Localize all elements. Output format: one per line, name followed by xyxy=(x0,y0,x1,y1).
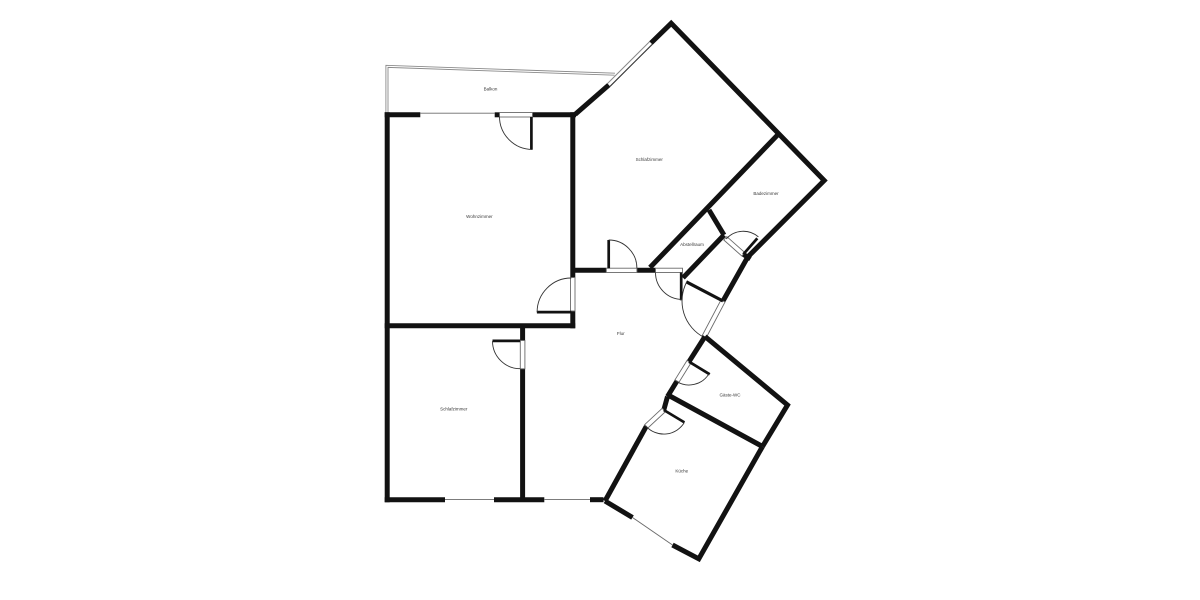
svg-text:Abstellraum: Abstellraum xyxy=(680,242,704,247)
svg-text:Wohnzimmer: Wohnzimmer xyxy=(466,214,493,219)
svg-text:Schlafzimmer: Schlafzimmer xyxy=(636,157,664,162)
svg-text:Schlafzimmer: Schlafzimmer xyxy=(440,407,468,412)
svg-text:Gäste-WC: Gäste-WC xyxy=(719,393,741,398)
svg-text:Küche: Küche xyxy=(675,469,688,474)
svg-text:Balkon: Balkon xyxy=(484,86,498,91)
svg-text:Flur: Flur xyxy=(617,331,625,336)
svg-text:Badezimmer: Badezimmer xyxy=(753,191,779,196)
